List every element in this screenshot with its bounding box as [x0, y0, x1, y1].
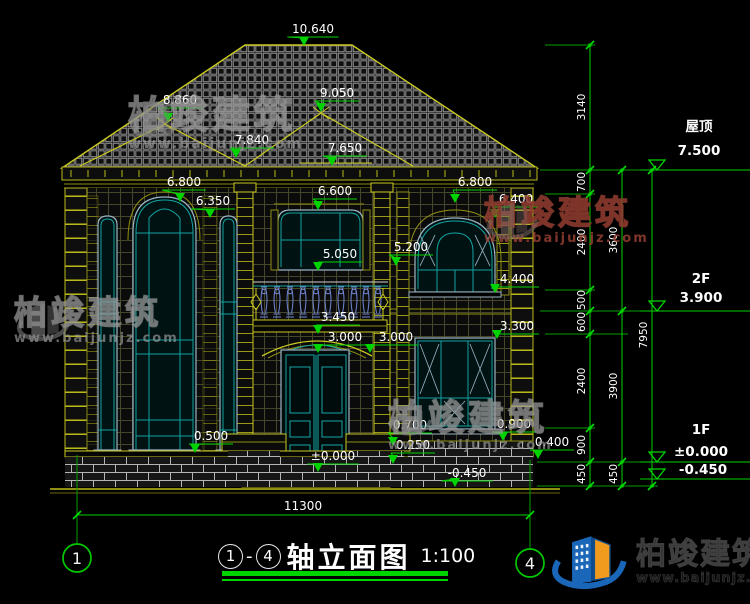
svg-text:1: 1 [72, 549, 82, 568]
dimension-chain: 314070024005006002400900450 [576, 41, 594, 490]
svg-text:0.400: 0.400 [535, 435, 569, 449]
svg-text:6.600: 6.600 [318, 184, 352, 198]
svg-text:3.450: 3.450 [321, 310, 355, 324]
title-dash: - [246, 546, 253, 567]
title-underline-thick [222, 571, 448, 576]
svg-text:5.050: 5.050 [323, 247, 357, 261]
brand-url: www.baijunjz.com [636, 571, 750, 586]
svg-text:7.840: 7.840 [235, 133, 269, 147]
axis-bubble-end: 4 [256, 544, 281, 569]
svg-text:0.700: 0.700 [393, 418, 427, 432]
svg-text:600: 600 [576, 312, 588, 332]
floor-level-marker: 2F3.900 [640, 271, 750, 311]
dimension-chain: 36003900450 [608, 166, 626, 490]
svg-text:0.900: 0.900 [497, 417, 531, 431]
title-text: 轴立面图 [287, 536, 411, 576]
ground-dimension: 11300 [284, 499, 322, 513]
svg-text:0.500: 0.500 [194, 429, 228, 443]
svg-text:-0.450: -0.450 [448, 466, 487, 480]
svg-text:8.860: 8.860 [163, 93, 197, 107]
axis-bubble: 1 [63, 544, 91, 572]
floor-level-marker: 1F±0.000 [640, 422, 750, 462]
svg-text:5.200: 5.200 [394, 240, 428, 254]
svg-text:3600: 3600 [608, 227, 620, 254]
svg-text:3.300: 3.300 [500, 319, 534, 333]
window-left-wide [128, 192, 200, 455]
drawing-title: 1 - 4 轴立面图 1:100 [218, 536, 475, 576]
title-underline-thin [222, 579, 448, 581]
svg-text:屋顶: 屋顶 [686, 119, 714, 135]
floor-level-marker: -0.450 [640, 462, 750, 479]
svg-text:450: 450 [608, 464, 620, 484]
brand-logo-icon [548, 528, 634, 596]
svg-text:4: 4 [525, 554, 535, 573]
hip-roof [62, 45, 537, 168]
svg-text:2400: 2400 [576, 229, 588, 256]
svg-text:6.400: 6.400 [499, 192, 533, 206]
svg-text:7950: 7950 [638, 322, 650, 349]
svg-text:10.640: 10.640 [292, 22, 334, 36]
cad-elevation-canvas: 10.6409.0508.8607.8407.6506.8006.3506.60… [0, 0, 750, 604]
svg-text:4.400: 4.400 [500, 272, 534, 286]
brand-footer: 柏竣建筑 www.baijunjz.com [548, 528, 748, 596]
svg-text:7.500: 7.500 [678, 143, 721, 159]
svg-text:±0.000: ±0.000 [311, 449, 355, 463]
svg-text:9.050: 9.050 [320, 86, 354, 100]
brand-name: 柏竣建筑 [636, 538, 750, 571]
svg-text:3140: 3140 [576, 94, 588, 121]
svg-text:±0.000: ±0.000 [674, 444, 728, 460]
elevation-marker: 10.640 [287, 22, 338, 46]
axis-bubble-start: 1 [218, 544, 243, 569]
svg-text:7.650: 7.650 [328, 141, 362, 155]
svg-text:0.250: 0.250 [396, 438, 430, 452]
svg-text:3.900: 3.900 [680, 290, 723, 306]
ground-line [50, 489, 560, 493]
title-scale: 1:100 [421, 545, 476, 567]
window-left-narrow-2 [216, 216, 241, 455]
svg-text:2400: 2400 [576, 368, 588, 395]
window-left-narrow-1 [94, 216, 121, 455]
svg-text:3900: 3900 [608, 373, 620, 400]
axis-bubble: 4 [516, 549, 544, 577]
svg-text:900: 900 [576, 435, 588, 455]
elevation-drawing: 10.6409.0508.8607.8407.6506.8006.3506.60… [0, 0, 750, 604]
elevation-marker: 0.400 [530, 435, 574, 459]
svg-text:6.350: 6.350 [196, 194, 230, 208]
svg-text:6.800: 6.800 [167, 175, 201, 189]
dimension-chain: 7950 [638, 166, 656, 490]
svg-text:3.000: 3.000 [328, 330, 362, 344]
svg-text:-0.450: -0.450 [679, 462, 727, 478]
floor-level-marker: 屋顶7.500 [640, 119, 750, 170]
svg-text:700: 700 [576, 172, 588, 192]
svg-text:450: 450 [576, 464, 588, 484]
svg-text:6.800: 6.800 [458, 175, 492, 189]
svg-text:1F: 1F [692, 422, 711, 438]
svg-text:2F: 2F [692, 271, 711, 287]
svg-text:500: 500 [576, 290, 588, 310]
svg-text:3.000: 3.000 [379, 330, 413, 344]
